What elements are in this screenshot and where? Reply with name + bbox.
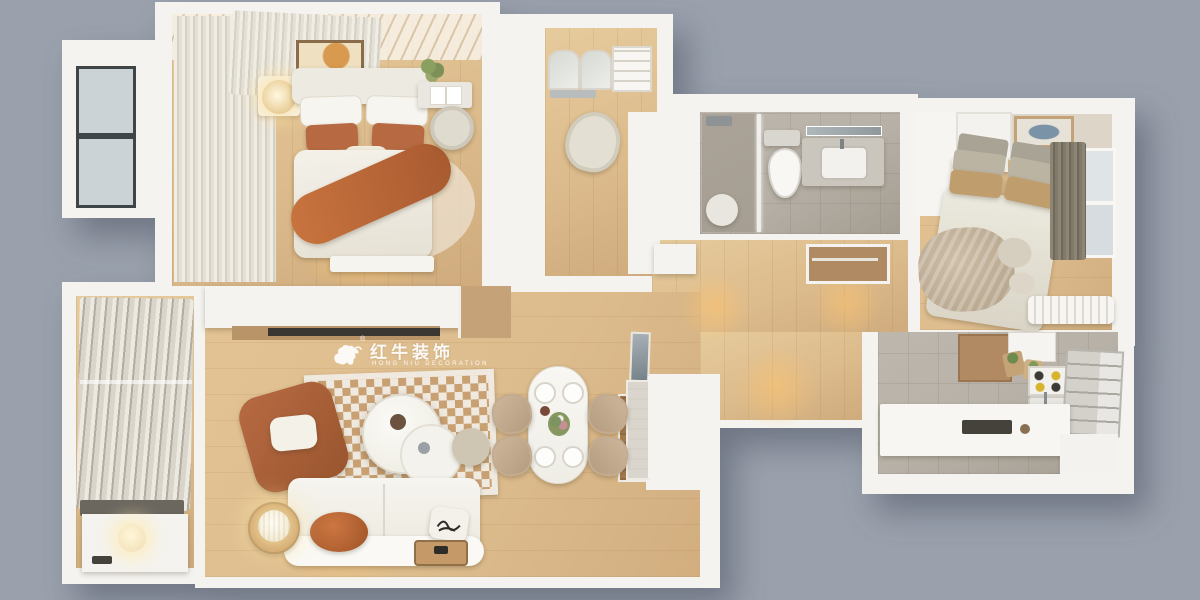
sofa-seam — [383, 484, 385, 544]
place-setting-plate — [534, 382, 556, 404]
sheer-curtain-stack — [76, 297, 194, 511]
floorplan-scene: ® 红牛装饰 HONG NIU DECORATION — [0, 0, 1200, 600]
counter-hob — [962, 420, 1012, 434]
glowing-table-lamp — [262, 80, 296, 114]
kitchen-faucet — [1044, 392, 1047, 404]
graphic-pillow — [428, 506, 470, 543]
bay-window-pane — [76, 66, 136, 136]
light-pool — [680, 272, 750, 342]
shower-set — [706, 116, 732, 126]
foot-bench — [330, 256, 434, 272]
bull-logo-icon — [332, 342, 362, 370]
vanity-mirror — [806, 126, 882, 136]
bay-window-pane — [76, 136, 136, 208]
pouf — [452, 428, 490, 466]
table-deco — [418, 442, 430, 454]
toilet-tank — [764, 130, 800, 146]
brand-name-en: HONG NIU DECORATION — [372, 361, 489, 367]
gray-curtain — [1050, 142, 1086, 260]
brand-watermark: ® 红牛装饰 HONG NIU DECORATION — [332, 338, 472, 384]
registered-mark: ® — [360, 336, 365, 343]
pillow-squiggle-icon — [428, 506, 470, 543]
round-chair — [430, 106, 474, 150]
coat-closet — [806, 244, 890, 284]
display-cabinet — [626, 380, 650, 480]
floating-tv-cabinet — [205, 286, 461, 328]
apartment-render — [0, 0, 1200, 600]
curtain-rod — [80, 380, 192, 384]
table-bowl — [390, 414, 406, 430]
counter-bowl — [1020, 424, 1030, 434]
centerpiece-cup — [540, 406, 550, 416]
arched-glass-cabinet — [580, 50, 612, 90]
brand-name-cn: 红牛装饰 — [370, 338, 454, 363]
paper-lantern-lamp — [258, 510, 290, 542]
place-setting-plate — [562, 446, 584, 468]
plant — [420, 56, 444, 82]
coffee-table-upper — [400, 424, 462, 486]
cooktop — [1028, 366, 1068, 396]
open-shelf — [612, 46, 652, 92]
faucet — [840, 139, 844, 149]
flower-centerpiece — [548, 412, 570, 436]
light-pool — [735, 345, 819, 429]
wood-side-box — [458, 286, 511, 338]
leaning-mirror — [629, 332, 651, 383]
radiator — [1028, 296, 1114, 324]
closet-rod — [812, 258, 878, 261]
washer-glowing-light — [118, 524, 146, 552]
place-setting-plate — [534, 446, 556, 468]
hall-console — [654, 244, 696, 274]
dining-cabinet — [648, 376, 684, 478]
counter-right-step — [1060, 434, 1118, 474]
wall-fixtures — [550, 90, 596, 98]
place-setting-plate — [562, 382, 584, 404]
refrigerator — [1062, 349, 1124, 438]
armchair-white-pillow — [269, 414, 318, 453]
shower-round-mat — [706, 194, 738, 226]
tv-slot — [268, 328, 440, 336]
tray-device — [434, 546, 448, 554]
glass-partition — [757, 114, 761, 232]
arched-glass-cabinet — [548, 50, 580, 90]
balcony-mat — [92, 556, 112, 564]
orange-cushion — [310, 512, 368, 552]
vanity-sink — [820, 146, 868, 180]
open-book — [430, 86, 462, 105]
